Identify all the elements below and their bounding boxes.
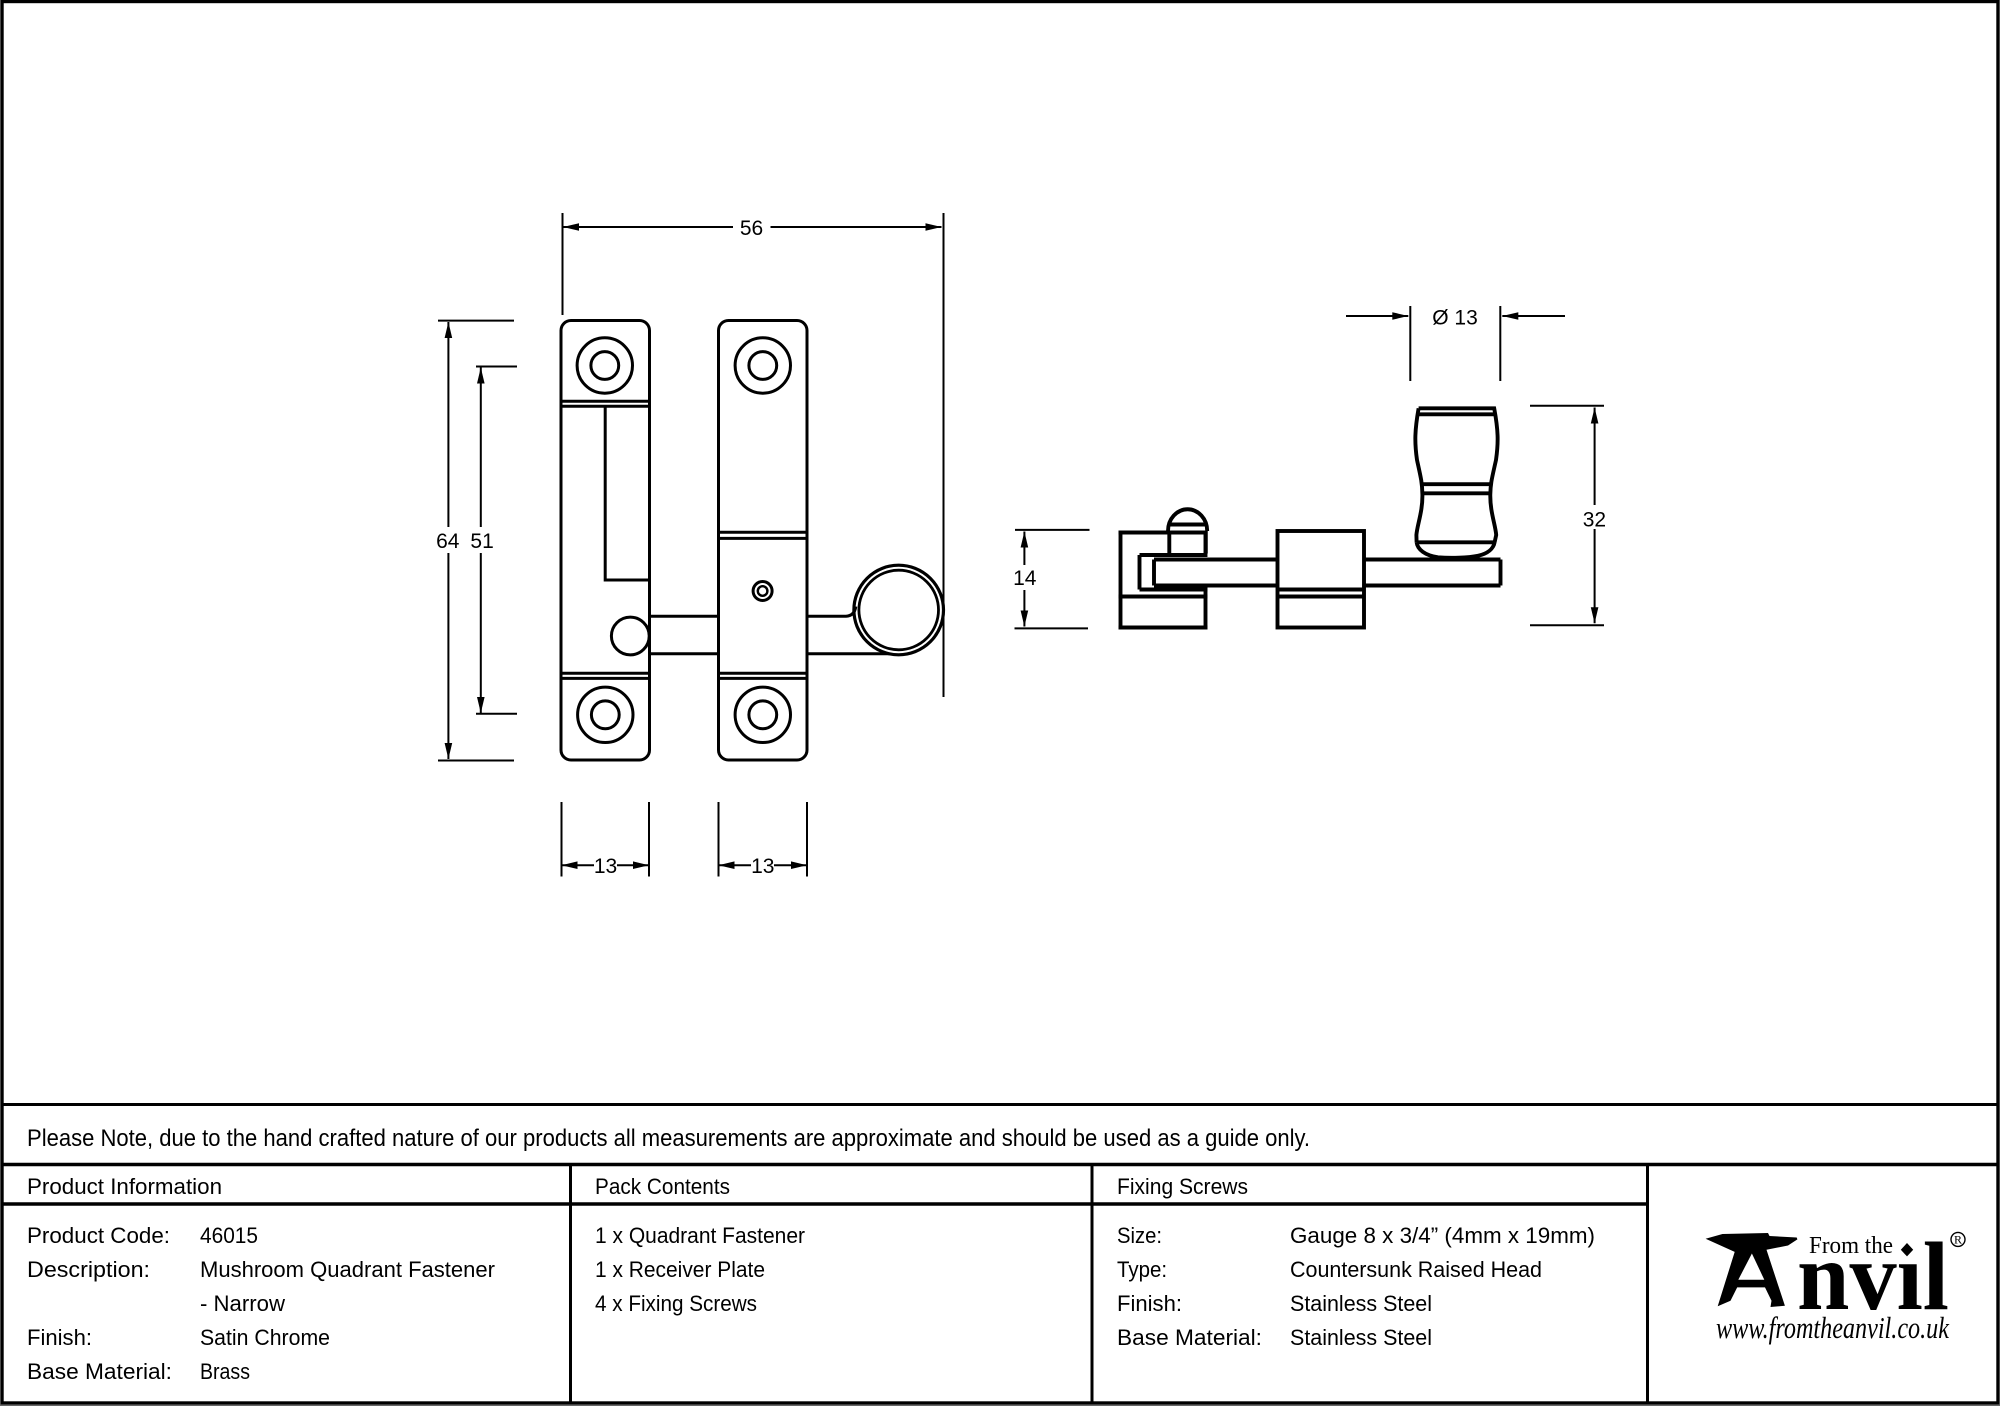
svg-text:64: 64: [436, 530, 460, 553]
svg-text:Finish:: Finish:: [27, 1325, 92, 1350]
svg-text:Gauge 8 x 3/4” (4mm x 19mm): Gauge 8 x 3/4” (4mm x 19mm): [1290, 1223, 1595, 1248]
svg-text:R: R: [1954, 1233, 1962, 1247]
svg-text:Fixing Screws: Fixing Screws: [1117, 1174, 1248, 1199]
svg-text:Product Information: Product Information: [27, 1174, 222, 1199]
svg-text:56: 56: [740, 217, 763, 240]
svg-text:Ø 13: Ø 13: [1432, 307, 1478, 330]
svg-text:14: 14: [1013, 567, 1037, 590]
svg-text:Mushroom Quadrant Fastener: Mushroom Quadrant Fastener: [200, 1257, 495, 1282]
svg-text:Satin Chrome: Satin Chrome: [200, 1325, 330, 1350]
svg-text:Brass: Brass: [200, 1359, 250, 1384]
svg-text:51: 51: [470, 530, 493, 553]
svg-text:Base Material:: Base Material:: [27, 1359, 172, 1384]
svg-text:From the: From the: [1809, 1233, 1893, 1259]
svg-text:46015: 46015: [200, 1223, 258, 1248]
svg-text:32: 32: [1583, 509, 1606, 532]
svg-text:Stainless Steel: Stainless Steel: [1290, 1291, 1432, 1316]
svg-text:Countersunk Raised Head: Countersunk Raised Head: [1290, 1257, 1542, 1282]
svg-text:- Narrow: - Narrow: [200, 1291, 285, 1316]
svg-text:1 x Receiver Plate: 1 x Receiver Plate: [595, 1257, 765, 1282]
svg-text:Description:: Description:: [27, 1257, 150, 1282]
svg-text:Type:: Type:: [1117, 1257, 1167, 1282]
svg-text:Pack Contents: Pack Contents: [595, 1174, 730, 1199]
svg-text:www.fromtheanvil.co.uk: www.fromtheanvil.co.uk: [1716, 1311, 1949, 1345]
svg-text:Finish:: Finish:: [1117, 1291, 1182, 1316]
svg-text:Stainless Steel: Stainless Steel: [1290, 1325, 1432, 1350]
svg-text:13: 13: [751, 855, 774, 878]
svg-text:Size:: Size:: [1117, 1223, 1162, 1248]
svg-text:Please Note, due to the hand c: Please Note, due to the hand crafted nat…: [27, 1125, 1310, 1152]
svg-text:13: 13: [594, 855, 617, 878]
svg-text:4 x Fixing Screws: 4 x Fixing Screws: [595, 1291, 757, 1316]
svg-text:1 x Quadrant Fastener: 1 x Quadrant Fastener: [595, 1223, 805, 1248]
svg-text:Product Code:: Product Code:: [27, 1223, 170, 1248]
svg-text:Base Material:: Base Material:: [1117, 1325, 1262, 1350]
